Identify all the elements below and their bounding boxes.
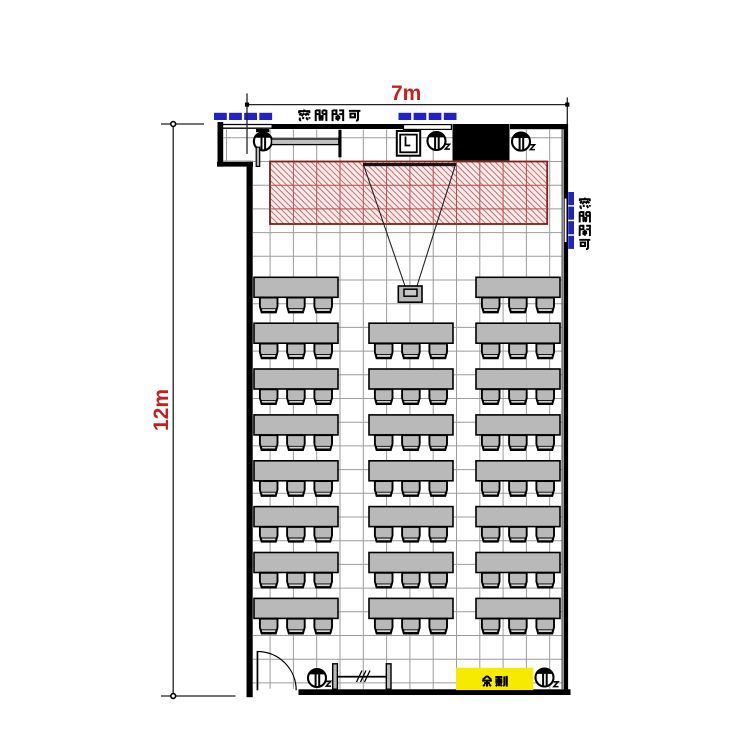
svg-text:12m: 12m [150,389,173,431]
svg-text:7m: 7m [391,82,421,105]
